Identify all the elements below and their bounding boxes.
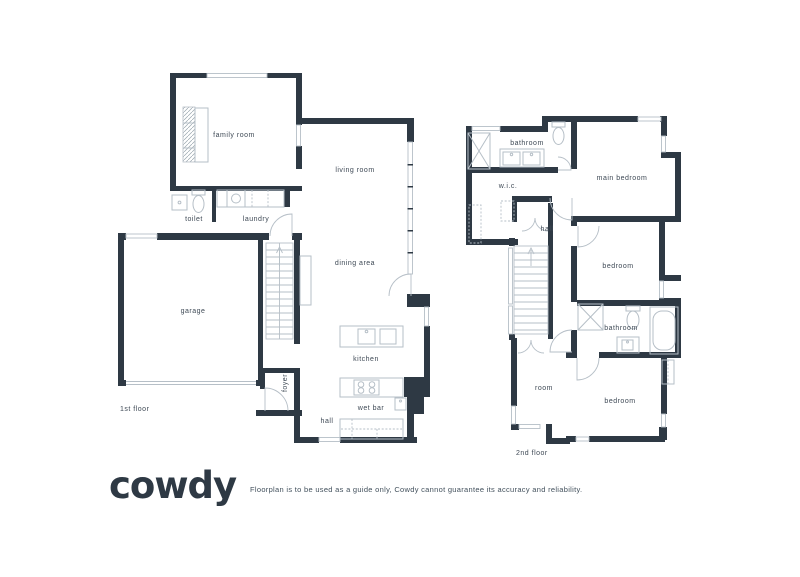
garage-door xyxy=(126,382,256,385)
room-label-room: room xyxy=(535,385,553,392)
sink-icon xyxy=(617,337,639,353)
room-label-bedroom-bottom: bedroom xyxy=(604,398,635,405)
buffet-cabinet xyxy=(300,256,311,305)
room-label-hall-1f: hall xyxy=(321,418,334,425)
floor-label-2nd: 2nd floor xyxy=(516,450,548,457)
door-arc xyxy=(577,358,599,380)
disclaimer-text: Floorplan is to be used as a guide only,… xyxy=(250,485,582,494)
logo-text: cowdy xyxy=(109,464,237,507)
room-label-bedroom-middle: bedroom xyxy=(602,263,633,270)
laundry-appliances xyxy=(217,190,284,207)
second-floor-plan: bathroom w.i.c. main bedroom hall bedroo… xyxy=(466,116,681,457)
toilet-icon xyxy=(552,122,565,145)
room-label-garage: garage xyxy=(181,308,206,315)
room-label-bathroom-lower: bathroom xyxy=(604,325,638,332)
second-floor-windows xyxy=(472,117,666,441)
double-sink-icon xyxy=(500,149,544,167)
room-label-foyer: foyer xyxy=(282,374,289,392)
footer: cowdy Floorplan is to be used as a guide… xyxy=(109,464,582,507)
floorplan-page: family room living room toilet laundry g… xyxy=(0,0,800,577)
staircase-icon xyxy=(514,246,548,334)
shower-icon xyxy=(578,304,603,330)
first-floor-fixtures xyxy=(172,107,406,439)
second-floor-walls xyxy=(466,116,681,444)
room-label-wic: w.i.c. xyxy=(498,183,518,190)
door-arc xyxy=(550,198,572,220)
room-label-wet-bar: wet bar xyxy=(357,405,385,412)
room-label-dining-area: dining area xyxy=(335,260,375,267)
stove-icon xyxy=(340,378,403,397)
room-label-bathroom-top: bathroom xyxy=(510,140,544,147)
staircase-icon xyxy=(266,243,293,339)
toilet-icon xyxy=(192,190,205,213)
door-arc xyxy=(558,157,571,170)
room-label-kitchen: kitchen xyxy=(353,356,379,363)
bathtub-icon xyxy=(650,307,678,354)
first-floor-walls xyxy=(118,73,430,443)
hearth xyxy=(195,108,208,162)
room-label-main-bedroom: main bedroom xyxy=(597,175,648,182)
floorplan-canvas: family room living room toilet laundry g… xyxy=(0,0,800,577)
room-label-family-room: family room xyxy=(213,132,255,139)
door-arc xyxy=(550,330,572,352)
room-label-hall-2f: hall xyxy=(541,226,554,233)
floor-label-1st: 1st floor xyxy=(120,406,150,413)
first-floor-plan: family room living room toilet laundry g… xyxy=(118,73,430,443)
sink-icon xyxy=(172,195,187,210)
door-arc xyxy=(270,214,292,236)
door-arc xyxy=(389,274,411,296)
room-label-laundry: laundry xyxy=(243,216,269,223)
fireplace-icon xyxy=(183,107,195,162)
door-arc xyxy=(578,226,599,247)
closet-door-arc xyxy=(518,340,544,353)
kitchen-island xyxy=(340,326,403,347)
room-label-toilet: toilet xyxy=(185,216,203,223)
second-floor-doors xyxy=(518,157,599,380)
room-label-living-room: living room xyxy=(335,167,374,174)
